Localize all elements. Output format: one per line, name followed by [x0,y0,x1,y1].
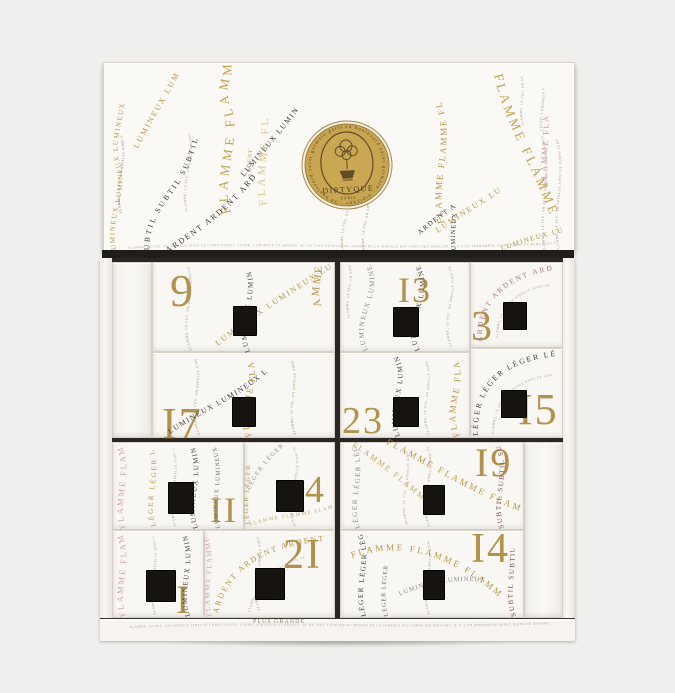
logo-svg: 34 boulevard saint germain · diptyque · … [298,117,397,214]
drawer-pull-9[interactable] [233,306,257,336]
drawer-number-14: I4 [471,528,510,570]
drawer-number-9: 9 [170,268,195,314]
drawer-pull-15[interactable] [501,390,527,418]
drawer-pull-14[interactable] [423,570,445,600]
drawer-blank-left[interactable] [112,262,152,438]
cabinet-base-strip [100,618,575,641]
drawer-pull-3[interactable] [503,302,527,330]
calendar-lid[interactable]: LUMINEUX LUMINEUX LUMINEUXLUMINEUX LUMIN… [103,62,575,252]
drawer-number-11: II [210,492,238,528]
product-photo-advent-calendar: LUMINEUX LUMINEUX LUMINEUXLUMINEUX LUMIN… [0,0,675,693]
drawer-number-1: I [176,580,191,620]
drawer-pull-4[interactable] [276,480,304,512]
svg-text:FLAMME FL: FLAMME FL [256,115,272,206]
drawer-pull-21[interactable] [255,568,285,600]
cabinet-left-wall [100,258,112,640]
logo-city-text: PARIS [341,196,357,201]
drawer-pull-13[interactable] [393,307,419,337]
svg-text:FLAMME FLAMME FL: FLAMME FLAMME FL [433,100,449,225]
cabinet-right-wall [563,258,575,640]
drawer-number-4: 4 [305,471,326,509]
drawer-number-23: 23 [342,402,384,440]
drawer-number-19: I9 [475,443,512,483]
drawer-pull-17[interactable] [232,397,256,427]
drawer-pull-19[interactable] [423,485,445,515]
base-edge-text: PLUS GRANDE [253,619,305,625]
svg-text:LUMINEUX LUMINEUX LUMINEUX: LUMINEUX LUMINEUX LUMINEUX [108,102,126,253]
drawer-number-21: 2I [283,534,322,576]
drawer-number-13: I3 [398,272,432,308]
drawer-pull-11[interactable] [168,482,194,514]
svg-text:FLAMME FLAMME: FLAMME FLAMME [491,72,562,218]
drawer-blank-right[interactable] [524,442,563,618]
svg-text:LUMINEUX LUMINE: LUMINEUX LUMINE [104,63,301,178]
drawer-pull-1[interactable] [146,570,176,602]
diptyque-logo-medallion: 34 boulevard saint germain · diptyque · … [298,117,397,214]
svg-text:ARDENT ARDENT ARDENT: ARDENT ARDENT ARDENT [104,63,259,253]
drawer-number-3: 3 [471,306,494,348]
drawer-pull-23[interactable] [393,397,419,427]
drawer-number-17: I7 [162,402,203,446]
